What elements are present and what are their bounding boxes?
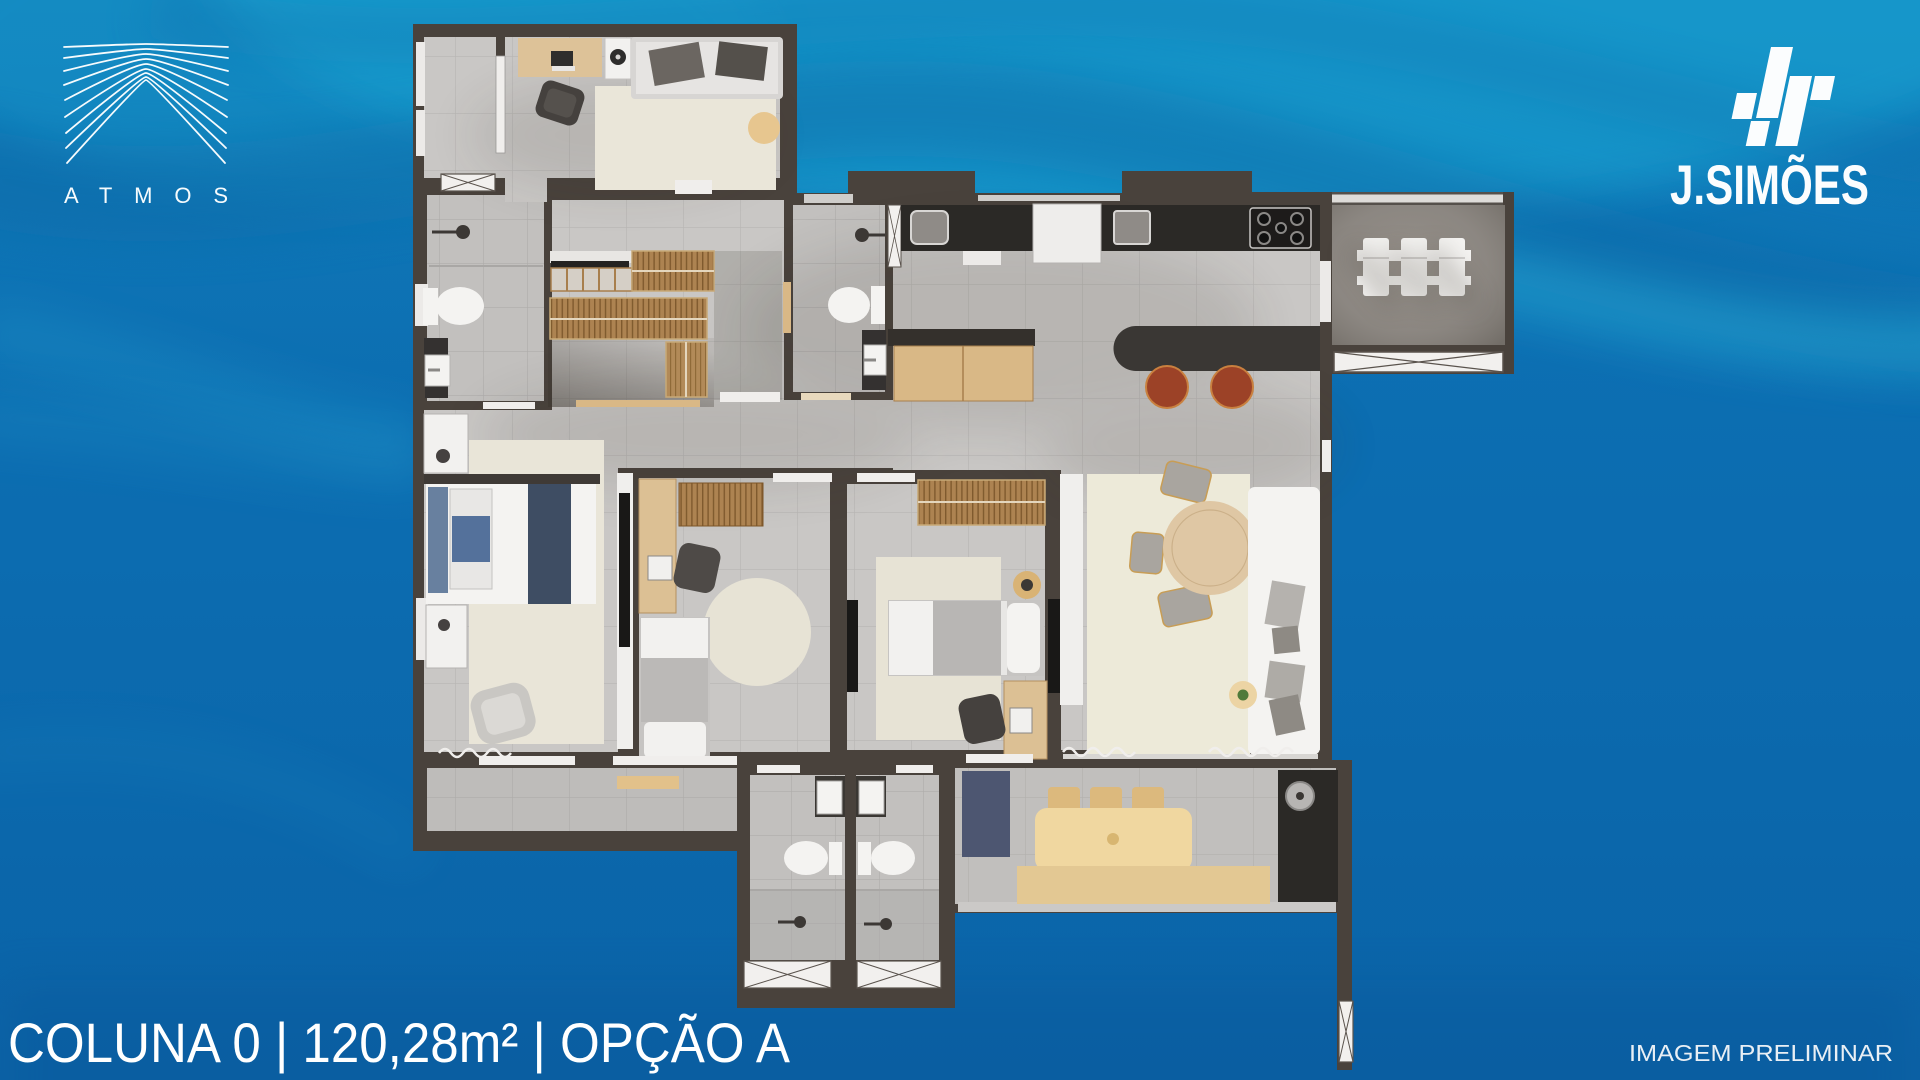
svg-text:J.SIMÕES: J.SIMÕES [1670,153,1869,216]
svg-text:IMAGEM PRELIMINAR: IMAGEM PRELIMINAR [1629,1040,1893,1066]
svg-text:COLUNA 0 | 120,28m² | OPÇÃO A: COLUNA 0 | 120,28m² | OPÇÃO A [8,1011,791,1074]
